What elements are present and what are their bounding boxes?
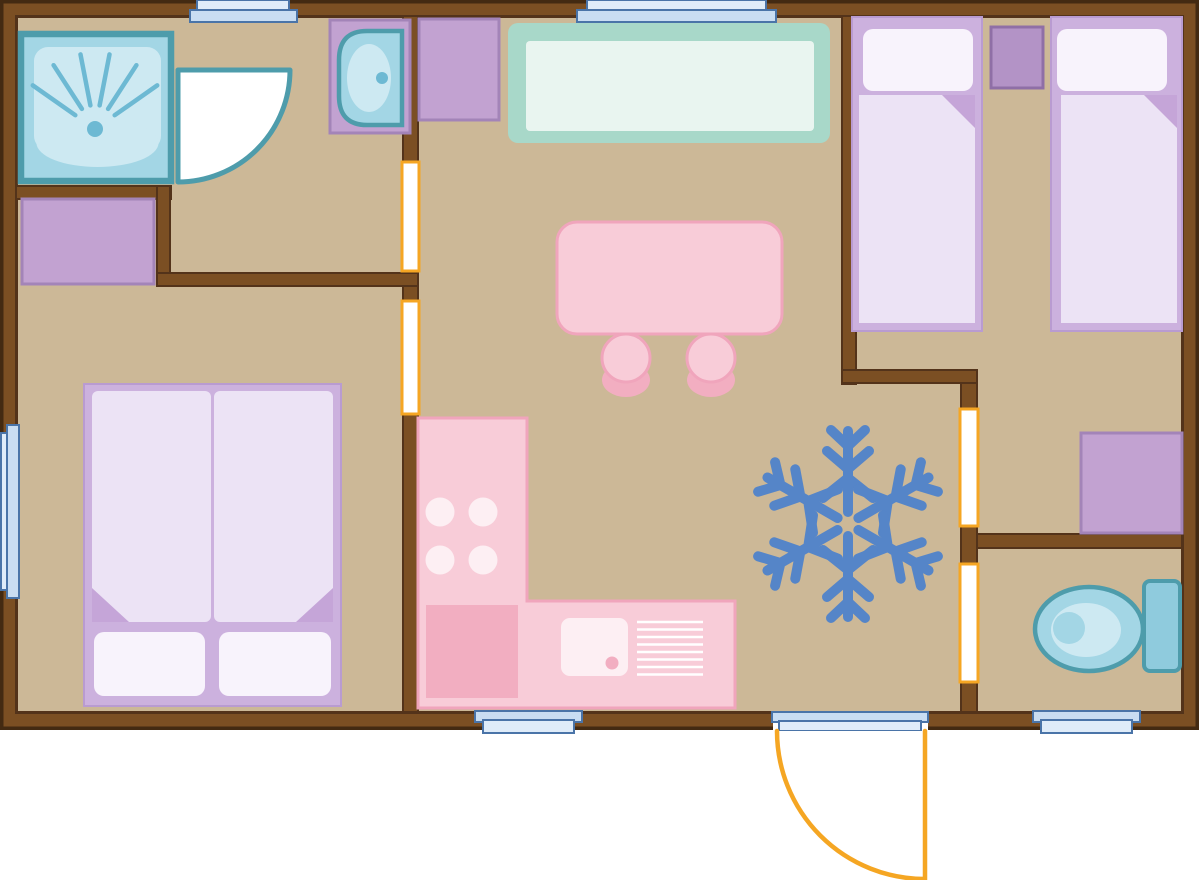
pillow xyxy=(94,632,205,696)
floor-plan-page xyxy=(0,0,1199,880)
hob-burner xyxy=(469,546,498,575)
sink-drain-icon xyxy=(606,657,619,670)
window-left xyxy=(1,425,19,598)
double-bed-mattress-right xyxy=(214,391,333,622)
single-bed xyxy=(852,17,982,331)
stool-seat xyxy=(687,334,735,382)
washbasin-drain-icon xyxy=(376,72,388,84)
double-bed-mattress-left xyxy=(92,391,211,622)
hob-burner xyxy=(426,546,455,575)
sofa-cushion xyxy=(526,41,814,131)
single-bed xyxy=(1051,17,1182,331)
hob-burner xyxy=(469,498,498,527)
pillow xyxy=(863,29,973,91)
dining-table xyxy=(557,222,782,334)
wardrobe xyxy=(22,199,154,284)
double-bed xyxy=(84,384,341,706)
interior-wall xyxy=(842,370,977,383)
window-sill xyxy=(7,425,19,598)
shower-cabin xyxy=(21,34,171,181)
interior-wall xyxy=(16,186,171,199)
stool xyxy=(687,334,735,397)
toilet xyxy=(1035,581,1180,671)
door-opening-wc xyxy=(960,564,978,682)
hob-burner xyxy=(426,498,455,527)
kitchen-sink xyxy=(561,618,628,676)
entry-threshold-step xyxy=(779,721,921,731)
toilet-seat-detail xyxy=(1053,612,1085,644)
floor-plan-drawing xyxy=(0,0,1199,880)
wardrobe xyxy=(419,19,499,120)
interior-wall xyxy=(977,534,1182,548)
window-pane xyxy=(483,720,574,733)
stool xyxy=(602,334,650,397)
interior-wall xyxy=(157,186,170,286)
window-top-center xyxy=(577,0,776,22)
pillow xyxy=(219,632,331,696)
interior-wall xyxy=(157,273,418,286)
door-opening-double-bedroom xyxy=(402,301,419,414)
stool-seat xyxy=(602,334,650,382)
toilet-cistern xyxy=(1144,581,1180,671)
door-opening-bathroom xyxy=(402,162,419,271)
window-bottom-right xyxy=(1033,711,1140,733)
door-opening-twin-bedroom xyxy=(960,409,978,526)
sofa xyxy=(508,23,830,143)
nightstand xyxy=(991,27,1043,88)
interior-wall xyxy=(961,526,977,564)
kitchen-cabinet xyxy=(426,605,518,698)
window-sill xyxy=(577,10,776,22)
window-top-left xyxy=(190,0,297,22)
wc-room xyxy=(1035,581,1180,671)
interior-wall xyxy=(403,414,418,712)
washbasin xyxy=(330,20,410,133)
window-sill xyxy=(190,10,297,22)
duvet xyxy=(1061,95,1177,323)
interior-wall xyxy=(961,682,977,712)
pillow xyxy=(1057,29,1167,91)
shower-drain-icon xyxy=(87,121,103,137)
window-bottom-kitchen xyxy=(475,711,582,733)
duvet xyxy=(859,95,975,323)
entry-door xyxy=(772,711,928,879)
wardrobe xyxy=(1081,433,1182,533)
interior-wall xyxy=(961,383,977,409)
window-pane xyxy=(1041,720,1132,733)
